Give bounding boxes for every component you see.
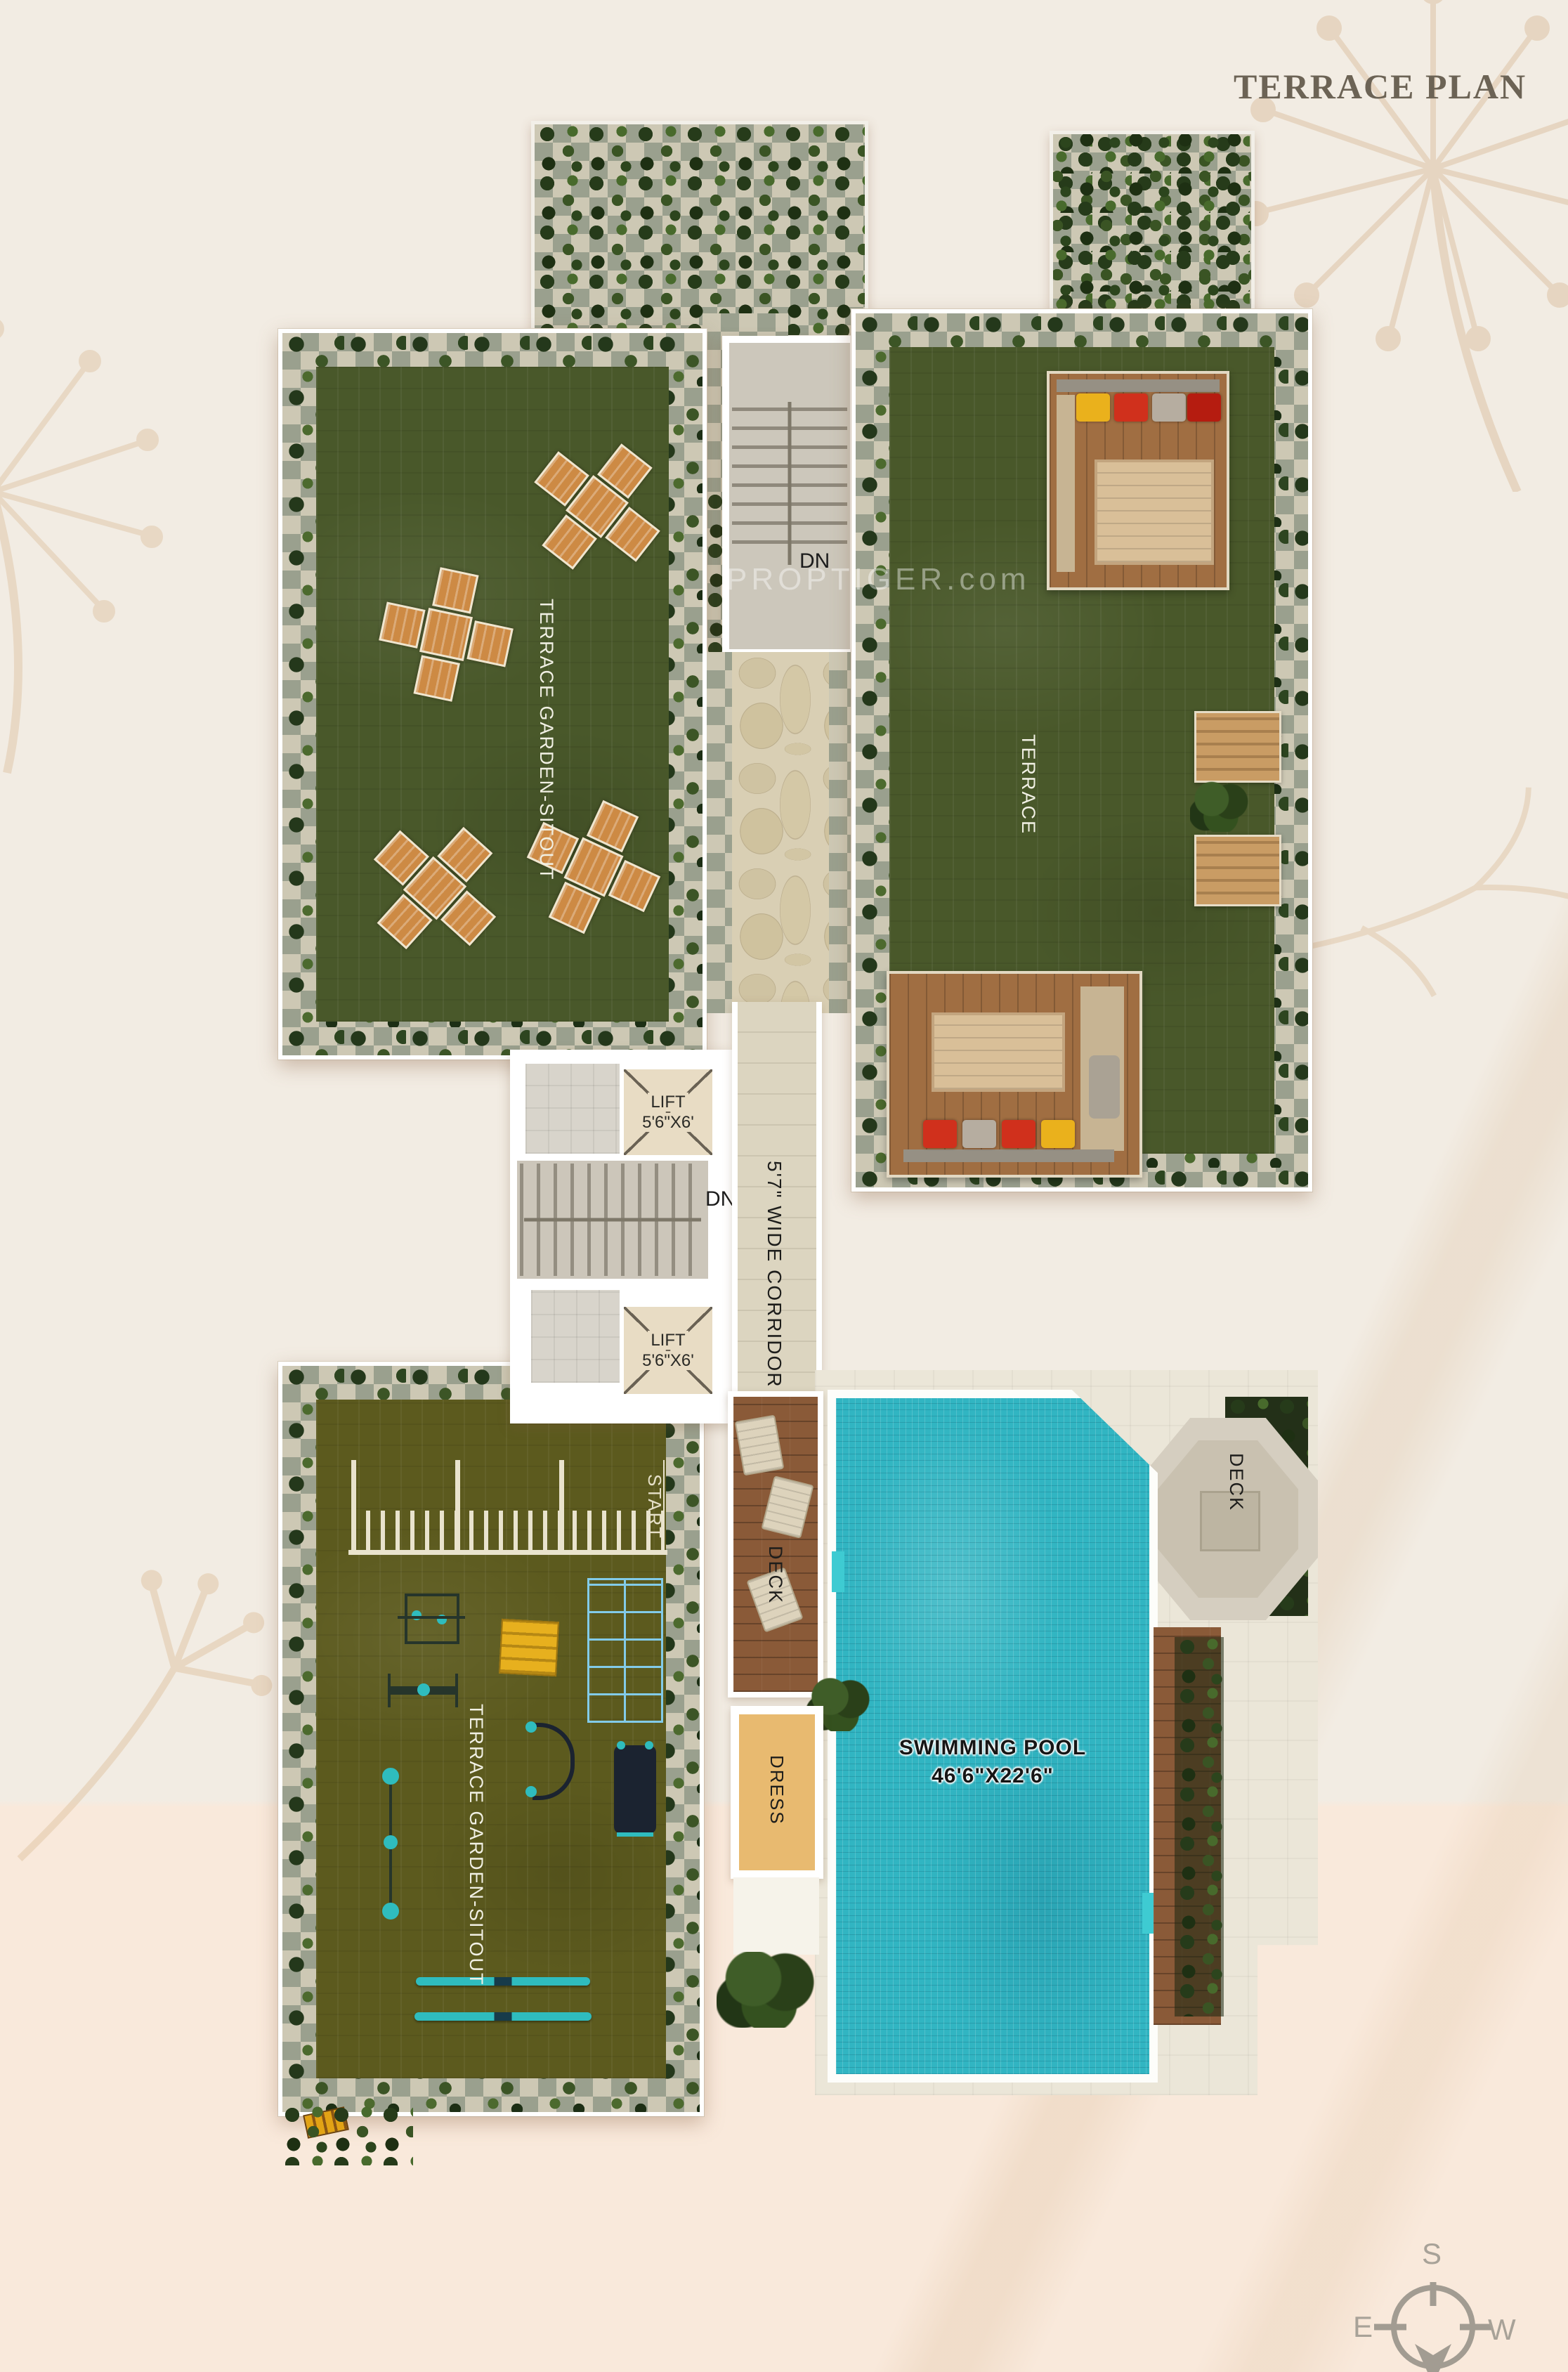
pool-label: SWIMMING POOL 46'6"X22'6" — [863, 1734, 1123, 1790]
compass-icon — [1368, 2282, 1502, 2372]
page-title: TERRACE PLAN — [1234, 66, 1527, 107]
garden-bench — [1194, 835, 1281, 906]
path-flagstones — [732, 652, 829, 1013]
pool-size: 46'6"X22'6" — [863, 1762, 1123, 1790]
lift-size-label: 5'6"X6' — [639, 1351, 697, 1370]
terrace-label: TERRACE — [1017, 734, 1039, 835]
compass-west-label: W — [1488, 2313, 1516, 2347]
planter-hedge — [535, 124, 865, 335]
lounge-chair — [735, 1415, 785, 1476]
lift-label: LIFT — [648, 1093, 688, 1112]
dress-label: DRESS — [766, 1755, 788, 1825]
garden-bench — [1194, 711, 1281, 783]
lounge-seat — [1089, 1055, 1120, 1119]
path-paver-edge — [707, 652, 732, 1013]
track-short-ticks — [351, 1511, 665, 1550]
staircase-mid — [517, 1161, 708, 1279]
deck-umbrella — [1138, 1418, 1318, 1620]
deck-table — [1095, 460, 1214, 565]
gym-yellow-box — [499, 1619, 559, 1676]
stair-divider — [788, 402, 792, 565]
top-planter-walk — [1050, 131, 1255, 322]
compass-east-label: E — [1353, 2310, 1373, 2344]
path-paver-edge — [829, 652, 854, 1013]
core-room — [531, 1290, 620, 1383]
corridor-label: 5'7" WIDE CORRIDOR — [763, 1161, 785, 1388]
left-wood-deck — [733, 1397, 818, 1692]
upper-left-garden-label: TERRACE GARDEN-SITOUT — [535, 599, 557, 881]
deck-table — [932, 1012, 1065, 1092]
gym-barbell — [416, 1977, 590, 1986]
stair-divider — [524, 1218, 701, 1222]
lift-top: LIFT 5'6"X6' — [624, 1069, 712, 1155]
sofa-cushion — [1114, 393, 1148, 422]
track-baseline — [348, 1550, 667, 1555]
gym-pole — [386, 1768, 395, 1917]
gym-seesaw — [388, 1686, 458, 1695]
terrace-plan-page: TERRACE GARDEN-SITOUT DN — [0, 0, 1568, 2372]
lower-left-garden-label: TERRACE GARDEN-SITOUT — [465, 1704, 487, 1986]
lounge-chair — [761, 1475, 814, 1539]
pool-name: SWIMMING POOL — [863, 1734, 1123, 1762]
sofa-deck — [887, 971, 1142, 1178]
core-room — [525, 1064, 620, 1154]
sofa-cushion — [1187, 393, 1221, 422]
sofa-cushion — [1152, 393, 1186, 422]
lower-left-garden: START TERRACE GARD — [278, 1362, 704, 2116]
upper-right-terrace: TERRACE — [851, 309, 1312, 1192]
sofa-cushion — [962, 1120, 996, 1148]
sofa-cushion — [1041, 1120, 1075, 1148]
gym-barbell — [414, 2012, 592, 2021]
lift-size-label: 5'6"X6' — [639, 1113, 697, 1132]
right-deck-label: DECK — [1225, 1453, 1247, 1511]
compass-south-label: S — [1422, 2237, 1442, 2271]
right-deck-plants — [1175, 1637, 1224, 2016]
picnic-table-set — [370, 558, 523, 711]
sofa-cushion — [1076, 393, 1110, 422]
sofa-deck — [1047, 371, 1229, 590]
sofa-back — [903, 1149, 1114, 1162]
court-grid — [587, 1578, 663, 1723]
top-planter-walk — [531, 121, 868, 339]
corner-hedge — [280, 2105, 413, 2165]
lift-bottom: LIFT 5'6"X6' — [624, 1307, 712, 1394]
upper-left-garden: TERRACE GARDEN-SITOUT — [278, 329, 707, 1060]
track-start-label: START — [643, 1474, 665, 1539]
sofa-cushion — [923, 1120, 957, 1148]
shrub — [717, 1952, 822, 2028]
shrub — [1190, 781, 1252, 832]
left-deck-label: DECK — [764, 1546, 786, 1604]
core-slab: LIFT 5'6"X6' LIFT 5'6"X6' — [510, 1050, 732, 1423]
garden-path — [707, 652, 854, 1013]
staircase-top — [722, 336, 857, 656]
stairwell-floor — [729, 343, 850, 649]
planter-hedge — [1053, 134, 1251, 318]
stairs-mid-dn-label: DN — [705, 1187, 736, 1211]
dress-walkway — [733, 1877, 819, 1955]
sofa-back — [1057, 379, 1220, 392]
sofa-cushion — [1002, 1120, 1035, 1148]
pool-ladder — [832, 1551, 844, 1592]
proptiger-watermark: PROPTIGER.com — [726, 562, 1031, 597]
sofa-arm — [1057, 395, 1075, 572]
lift-label: LIFT — [648, 1331, 688, 1350]
gym-station — [405, 1594, 459, 1644]
gym-bench — [614, 1745, 656, 1834]
